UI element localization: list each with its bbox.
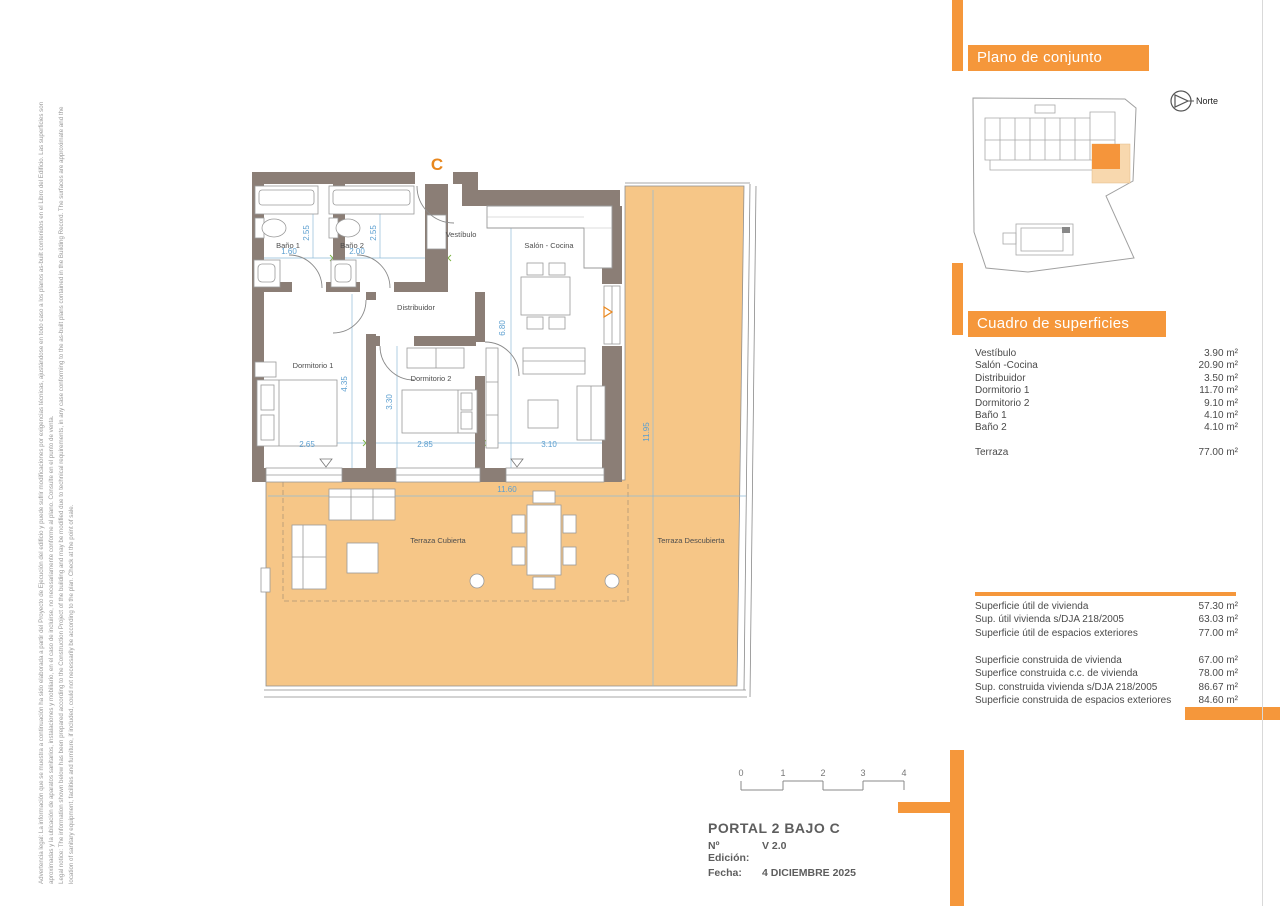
surface-label: Dormitorio 2 [975, 398, 1029, 410]
dim-dorm2-height: 3.30 [385, 394, 394, 410]
unit-location-highlight [1092, 144, 1120, 169]
site-plan-header: Plano de conjunto [968, 45, 1149, 71]
dim-bano1-width: 1.60 [281, 247, 297, 256]
accent-bar-stub [898, 802, 951, 813]
summary-row: Superfice construida c.c. de vivienda 78… [975, 667, 1238, 680]
summary-value: 63.03 m² [1199, 613, 1238, 626]
scale-tick-2: 2 [820, 768, 825, 778]
summary-label: Superficie útil de espacios exteriores [975, 627, 1138, 640]
nightstand-1 [255, 362, 276, 377]
summary-value: 86.67 m² [1199, 681, 1238, 694]
floor-plan-drawing: C Baño 1 Baño 2 Vestíbulo Salón - Cocina… [240, 148, 780, 708]
scale-tick-4: 4 [901, 768, 906, 778]
date-label: Fecha: [708, 867, 762, 879]
surface-row: Salón -Cocina 20.90 m² [975, 360, 1238, 372]
dining-table [521, 277, 570, 315]
sheet-title: PORTAL 2 BAJO C [708, 820, 856, 836]
unit-letter: C [431, 155, 443, 174]
terrace-planter [470, 574, 484, 588]
summary-label: Superfice construida c.c. de vivienda [975, 667, 1138, 680]
surface-label: Distribuidor [975, 373, 1026, 385]
site-building-detail [1062, 227, 1070, 233]
terrace-planter [605, 574, 619, 588]
site-plan-drawing: Norte [960, 85, 1240, 280]
surface-label: Vestíbulo [975, 348, 1016, 360]
scale-tick-labels: 0 1 2 3 4 [738, 768, 906, 778]
surface-row: Baño 1 4.10 m² [975, 410, 1238, 422]
scale-tick-1: 1 [780, 768, 785, 778]
room-label-terraza-cubierta: Terraza Cubierta [410, 536, 466, 545]
surface-label: Dormitorio 1 [975, 385, 1029, 397]
title-block: PORTAL 2 BAJO C Nº Edición: V 2.0 Fecha:… [708, 820, 856, 879]
disclaimer-line: aproximadas y la ubicación de aparatos s… [47, 26, 57, 884]
terrace-side-gate [261, 568, 270, 592]
summary-divider-rule [975, 592, 1236, 596]
dim-bano1-height: 2.55 [302, 225, 311, 241]
disclaimer-line: Legal notice: The information shown belo… [57, 26, 67, 884]
wardrobe-2 [407, 348, 464, 368]
coffee-table [528, 400, 558, 428]
plan-sheet-page: Advertencia legal: La información que se… [0, 0, 1280, 906]
summary-row: Sup. construida vivienda s/DJA 218/2005 … [975, 681, 1238, 694]
dim-dorm1-width: 2.65 [299, 440, 315, 449]
north-label: Norte [1196, 96, 1218, 106]
room-label-terraza-descubierta: Terraza Descubierta [657, 536, 725, 545]
built-surface-summary: Superficie construida de vivienda 67.00 … [975, 654, 1238, 707]
surface-value: 20.90 m² [1199, 360, 1238, 372]
surface-row: Baño 2 4.10 m² [975, 422, 1238, 434]
dim-salon-height: 6.80 [498, 320, 507, 336]
edition-row: Nº Edición: V 2.0 [708, 840, 856, 864]
summary-label: Sup. útil vivienda s/DJA 218/2005 [975, 613, 1124, 626]
scale-tick-0: 0 [738, 768, 743, 778]
terrace-sofa [329, 489, 395, 520]
surface-row-terraza: Terraza 77.00 m² [975, 447, 1238, 459]
disclaimer-line: Advertencia legal: La información que se… [37, 26, 47, 884]
dim-bano2-height: 2.55 [369, 225, 378, 241]
summary-row: Superficie útil de espacios exteriores 7… [975, 627, 1238, 640]
summary-value: 78.00 m² [1199, 667, 1238, 680]
surface-value: 9.10 m² [1204, 398, 1238, 410]
accent-bar-bottom [950, 750, 964, 906]
date-value: 4 DICIEMBRE 2025 [762, 867, 856, 879]
accent-bar-summary [1185, 707, 1280, 720]
scale-bar: 0 1 2 3 4 [728, 763, 923, 795]
surface-value: 4.10 m² [1204, 410, 1238, 422]
edition-value: V 2.0 [762, 840, 787, 864]
surface-row: Dormitorio 2 9.10 m² [975, 398, 1238, 410]
room-label-vestibulo: Vestíbulo [446, 230, 477, 239]
summary-label: Superficie construida de espacios exteri… [975, 694, 1171, 707]
scale-tick-3: 3 [860, 768, 865, 778]
room-label-dormitorio2: Dormitorio 2 [411, 374, 452, 383]
surface-label: Salón -Cocina [975, 360, 1038, 372]
surface-row: Vestíbulo 3.90 m² [975, 348, 1238, 360]
north-icon [1171, 91, 1194, 111]
summary-row: Sup. útil vivienda s/DJA 218/2005 63.03 … [975, 613, 1238, 626]
dim-terrace-width: 11.60 [497, 485, 517, 494]
accent-bar-mid [952, 263, 963, 335]
disclaimer-line: location of sanitary equipment, faciliti… [67, 26, 77, 884]
surfaces-table: Vestíbulo 3.90 m² Salón -Cocina 20.90 m²… [975, 348, 1238, 459]
summary-label: Superficie útil de vivienda [975, 600, 1088, 613]
surface-value: 77.00 m² [1199, 447, 1238, 459]
sheet-right-border [1262, 0, 1263, 906]
room-label-salon: Salón - Cocina [524, 241, 574, 250]
room-label-dormitorio1: Dormitorio 1 [293, 361, 334, 370]
dim-terrace-height: 11.95 [642, 422, 651, 442]
summary-row: Superficie construida de espacios exteri… [975, 694, 1238, 707]
dim-dorm1-height: 4.35 [340, 376, 349, 392]
date-row: Fecha: 4 DICIEMBRE 2025 [708, 867, 856, 879]
summary-value: 57.30 m² [1199, 600, 1238, 613]
useful-surface-summary: Superficie útil de vivienda 57.30 m² Sup… [975, 600, 1238, 640]
summary-row: Superficie útil de vivienda 57.30 m² [975, 600, 1238, 613]
summary-label: Superficie construida de vivienda [975, 654, 1122, 667]
surface-value: 4.10 m² [1204, 422, 1238, 434]
surface-value: 3.50 m² [1204, 373, 1238, 385]
room-label-distribuidor: Distribuidor [397, 303, 435, 312]
surface-label: Baño 2 [975, 422, 1007, 434]
summary-value: 84.60 m² [1199, 694, 1238, 707]
terrace-dining-table [527, 505, 561, 575]
surfaces-header: Cuadro de superficies [968, 311, 1166, 337]
summary-value: 67.00 m² [1199, 654, 1238, 667]
site-boundary [973, 98, 1136, 272]
dim-salon-width: 3.10 [541, 440, 557, 449]
summary-label: Sup. construida vivienda s/DJA 218/2005 [975, 681, 1157, 694]
legal-disclaimer: Advertencia legal: La información que se… [37, 26, 77, 884]
surface-value: 11.70 m² [1199, 385, 1238, 397]
dim-dorm2-width: 2.85 [417, 440, 433, 449]
kitchen-counter [487, 206, 612, 268]
scale-bar-line [741, 781, 904, 790]
window-marker-icon [320, 459, 523, 467]
surface-label: Terraza [975, 447, 1008, 459]
surface-row: Dormitorio 1 11.70 m² [975, 385, 1238, 397]
terrace-side-table [347, 543, 378, 573]
dim-bano2-width: 2.00 [349, 247, 365, 256]
accent-bar-top [952, 0, 963, 71]
summary-value: 77.00 m² [1199, 627, 1238, 640]
summary-row: Superficie construida de vivienda 67.00 … [975, 654, 1238, 667]
tv-unit [486, 348, 498, 448]
edition-label: Nº Edición: [708, 840, 762, 864]
surface-row: Distribuidor 3.50 m² [975, 373, 1238, 385]
surface-label: Baño 1 [975, 410, 1007, 422]
surface-value: 3.90 m² [1204, 348, 1238, 360]
